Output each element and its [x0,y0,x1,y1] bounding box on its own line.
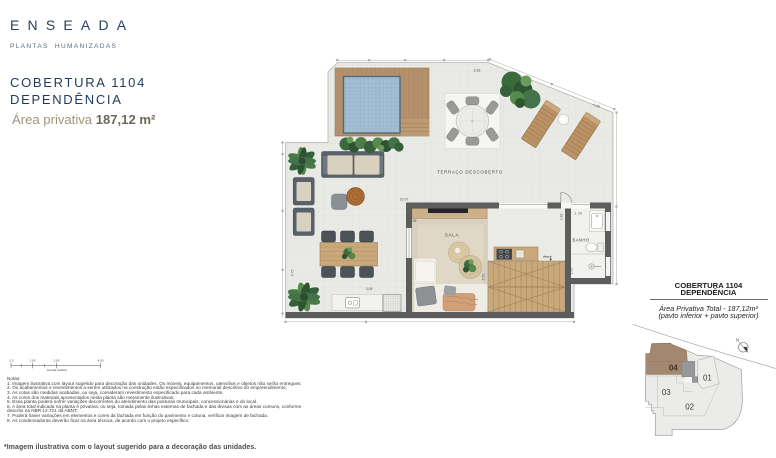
svg-text:Escala Gráfica: Escala Gráfica [47,368,67,372]
svg-text:01: 01 [703,373,712,382]
svg-text:BANHO: BANHO [573,238,590,243]
svg-text:02: 02 [685,403,694,412]
svg-text:04: 04 [669,363,678,372]
svg-text:10.97: 10.97 [400,198,409,202]
svg-text:1.00: 1.00 [30,359,36,363]
svg-text:2.42: 2.42 [570,268,574,275]
svg-text:N: N [736,338,739,343]
svg-text:0.5: 0.5 [9,359,14,363]
svg-text:1. 10: 1. 10 [574,212,582,216]
svg-text:9.28: 9.28 [474,69,481,73]
svg-text:2.00: 2.00 [54,359,60,363]
svg-text:desce: desce [543,255,552,259]
svg-text:TERRAÇO DESCOBERTO: TERRAÇO DESCOBERTO [437,170,503,175]
svg-text:5.55: 5.55 [482,274,486,281]
svg-text:3.08: 3.08 [366,287,373,291]
svg-text:3.38: 3.38 [410,219,417,223]
svg-text:SALA: SALA [445,233,460,238]
svg-text:4.00: 4.00 [98,359,104,363]
svg-text:1.82: 1.82 [560,214,564,221]
svg-text:03: 03 [662,388,671,397]
svg-text:4.75: 4.75 [291,270,295,277]
